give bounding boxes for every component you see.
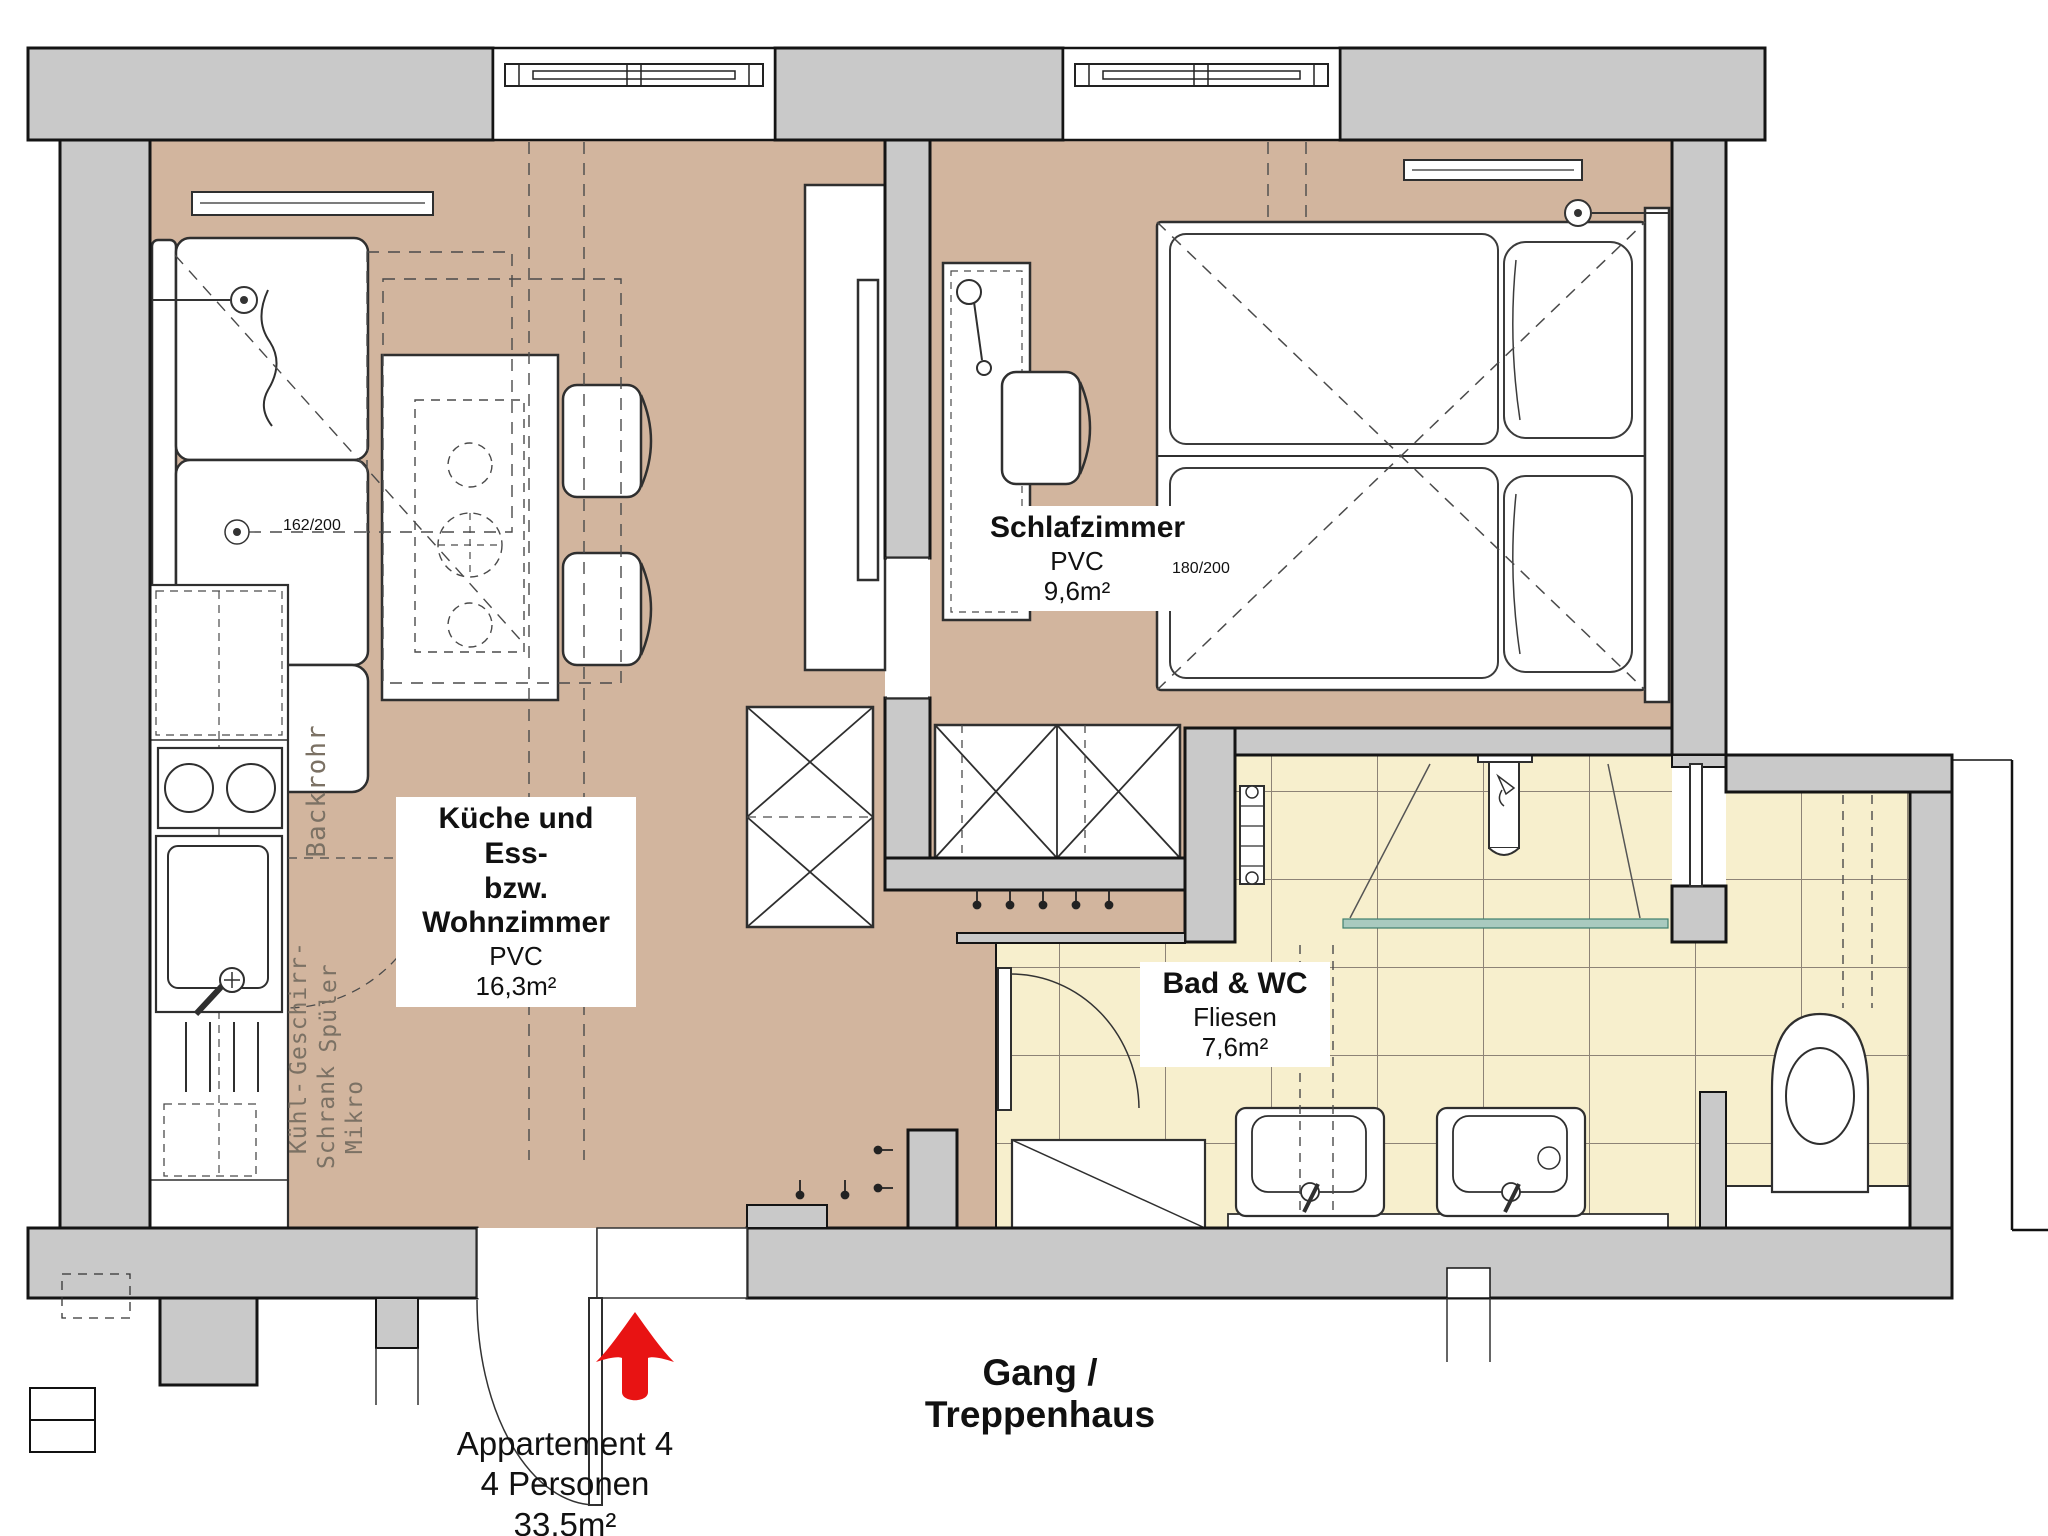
bedroom-area: 9,6m² (990, 576, 1164, 606)
living-room-name: Küche und Ess- (404, 802, 628, 872)
bedroom-floor: PVC (990, 546, 1164, 576)
floorplan: Küche und Ess- bzw. Wohnzimmer PVC 16,3m… (0, 0, 2048, 1536)
bathroom-name: Bad & WC (1148, 967, 1322, 1002)
apartment-capacity: 4 Personen (420, 1464, 710, 1504)
living-room-area: 16,3m² (404, 971, 628, 1001)
fridge-label-2: Schrank (314, 997, 340, 1237)
double-bed (1157, 208, 1669, 702)
doorway-living-bedroom (885, 558, 930, 698)
wardrobe-bedroom (935, 725, 1180, 858)
apartment-area: 33,5m² (420, 1505, 710, 1536)
living-room-floor: PVC (404, 941, 628, 971)
bathroom-floor: Fliesen (1148, 1002, 1322, 1032)
living-room-label: Küche und Ess- bzw. Wohnzimmer PVC 16,3m… (396, 797, 636, 1007)
bath-cabinet (1012, 1140, 1205, 1228)
window-living (493, 48, 775, 140)
towel-radiator (1240, 786, 1264, 884)
shower-glass-panel (1343, 919, 1668, 928)
fridge-label-1: Kühl- (286, 997, 312, 1237)
wardrobe-living (747, 707, 873, 927)
window-bedroom (1063, 48, 1340, 140)
bedroom-label: Schlafzimmer PVC 9,6m² (982, 506, 1172, 611)
entrance-arrow-icon (596, 1312, 674, 1400)
sofa-bed-dimension: 162/200 (283, 517, 341, 535)
bathroom-label: Bad & WC Fliesen 7,6m² (1140, 962, 1330, 1067)
toilet (1772, 1014, 1868, 1192)
cooktop (158, 748, 282, 828)
dining-chair-2 (563, 553, 651, 665)
neighbor-outline (1952, 760, 2048, 1230)
apartment-label: Appartement 4 4 Personen 33,5m² (420, 1424, 710, 1536)
fridge-label-3: Mikro (342, 997, 368, 1237)
dining-table (382, 355, 558, 700)
radiator-living (192, 192, 433, 215)
living-room-name2: bzw. Wohnzimmer (404, 872, 628, 942)
bathroom-area: 7,6m² (1148, 1032, 1322, 1062)
apartment-name: Appartement 4 (420, 1424, 710, 1464)
dining-chair-1 (563, 385, 651, 497)
washbasin-1 (1236, 1108, 1384, 1216)
radiator-bedroom (1404, 160, 1582, 180)
desk-chair (1002, 372, 1090, 484)
bedroom-name: Schlafzimmer (990, 511, 1164, 546)
toilet-area-door (1690, 764, 1702, 886)
washbasin-2 (1437, 1108, 1585, 1216)
tv-sideboard (805, 185, 885, 670)
oven-label: Backrohr (302, 671, 332, 911)
double-bed-dimension: 180/200 (1172, 560, 1230, 578)
corridor-label: Gang / Treppenhaus (870, 1352, 1210, 1436)
